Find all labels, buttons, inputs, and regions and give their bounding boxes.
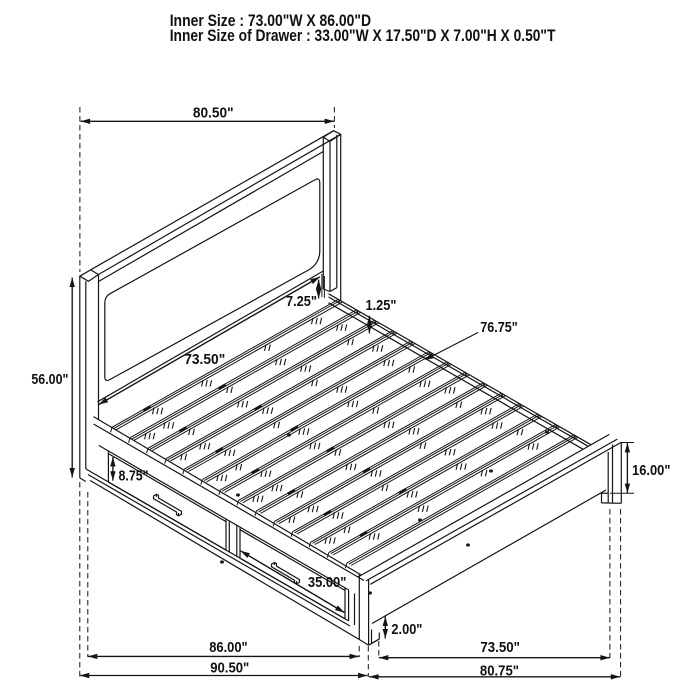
svg-text:73.50": 73.50" [184,352,225,368]
svg-text:16.00": 16.00" [632,463,671,479]
svg-text:8.75": 8.75" [119,469,149,485]
svg-text:80.75": 80.75" [480,664,519,680]
svg-text:76.75": 76.75" [480,320,518,336]
svg-text:86.00": 86.00" [209,640,248,656]
svg-text:73.50": 73.50" [480,640,520,656]
svg-text:56.00": 56.00" [31,372,68,388]
svg-text:80.50": 80.50" [193,105,234,121]
svg-text:1.25": 1.25" [366,298,397,314]
svg-text:2.00": 2.00" [391,622,422,638]
svg-text:7.25": 7.25" [286,294,317,310]
svg-text:90.50": 90.50" [210,660,249,676]
svg-text:Inner Size of Drawer : 33.00"W: Inner Size of Drawer : 33.00"W X 17.50"D… [170,26,556,45]
svg-text:35.00": 35.00" [308,575,347,591]
